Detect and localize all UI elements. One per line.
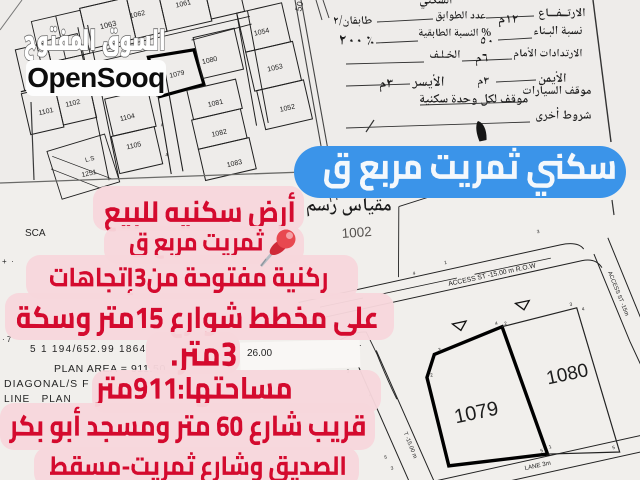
svg-text:SCA: SCA (25, 228, 46, 239)
svg-text:5 1 194/652.99 1864: 5 1 194/652.99 1864 (30, 344, 146, 355)
svg-text:26.00: 26.00 (247, 348, 272, 359)
svg-text:+ ·: + · (2, 257, 14, 266)
svg-text:DIAGONAL/S F: DIAGONAL/S F (4, 378, 90, 390)
svg-text:1002: 1002 (341, 224, 372, 241)
svg-text:OpenSooq: OpenSooq (27, 62, 165, 93)
